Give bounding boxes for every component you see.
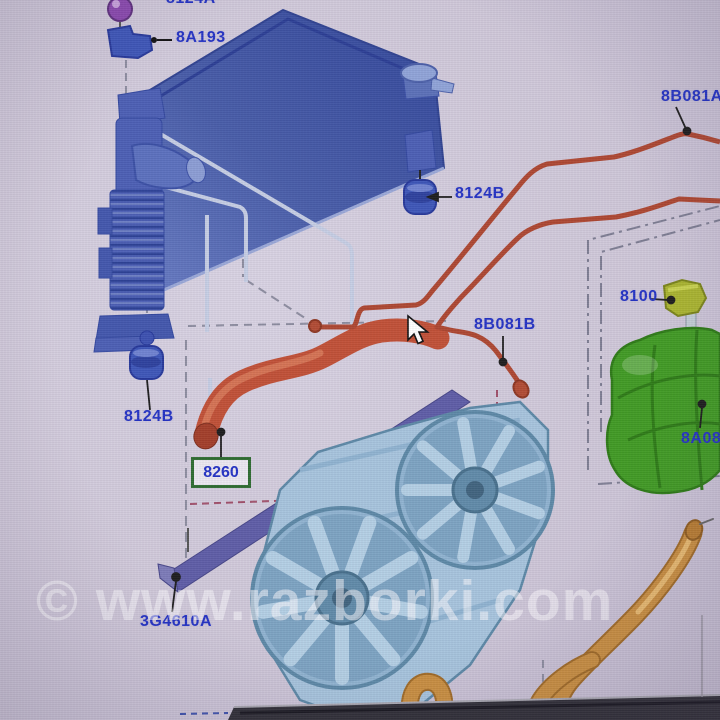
expansion-tank <box>607 280 720 493</box>
label-8124B-left[interactable]: 8124B <box>124 408 174 426</box>
label-8124B-right[interactable]: 8124B <box>455 185 505 203</box>
fan-rotor-left <box>252 508 432 688</box>
cooling-system-diagram <box>0 0 720 720</box>
bracket-8A193 <box>108 26 172 58</box>
hose-connector <box>510 378 531 401</box>
label-8100[interactable]: 8100 <box>620 288 658 306</box>
label-8260: 8260 <box>203 464 239 482</box>
label-8A080[interactable]: 8A080 <box>681 430 720 448</box>
fan-rotor-right <box>397 412 553 568</box>
label-3G4610A[interactable]: 3G4610A <box>140 613 212 631</box>
label-8A193[interactable]: 8A193 <box>176 29 226 47</box>
label-8B081B[interactable]: 8B081B <box>474 316 536 334</box>
hose-clip <box>309 320 321 332</box>
parts-diagram-screen: 8124A 8A193 8124B 8B081A 8B081B 8100 8A0… <box>0 0 720 720</box>
label-8B081A[interactable]: 8B081A <box>661 88 720 106</box>
radiator-filler-neck <box>401 64 454 99</box>
selected-part-box-8260[interactable]: 8260 <box>191 457 251 488</box>
radiator <box>120 10 454 412</box>
cooling-fan-assembly <box>252 402 553 718</box>
label-8124A[interactable]: 8124A <box>166 0 216 8</box>
